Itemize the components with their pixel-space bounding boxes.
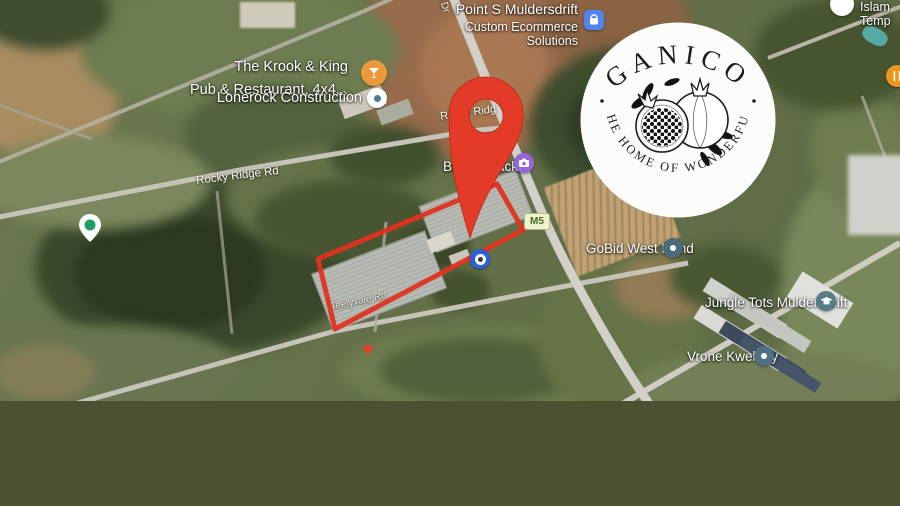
poi-dot-core <box>761 353 767 359</box>
poi-dot-icon[interactable] <box>754 346 774 366</box>
blue-circle-marker[interactable] <box>470 249 490 269</box>
poi-label: Solutions <box>456 34 578 48</box>
fork-knife-glyph <box>892 70 900 82</box>
poi-dot-icon[interactable] <box>367 88 387 108</box>
marker-inner <box>475 254 486 265</box>
bar-icon[interactable] <box>361 60 387 86</box>
poi-point-s[interactable]: Point S Muldersdrift Custom Ecommerce So… <box>456 2 578 48</box>
info-banner: WELCOME 12 MIN FROM LANSERIA 5 MIN TO TH… <box>0 401 900 506</box>
logo-dot-left <box>600 99 604 103</box>
red-dot-marker[interactable] <box>364 345 373 354</box>
poi-dot-core <box>374 95 381 102</box>
poi-label: Lonerock Construction <box>217 90 362 106</box>
screenshot: Rocky Ridge Rd Rocky Ridg Teelyvale Rd e… <box>0 0 900 506</box>
poi-label: The Krook & King <box>190 59 348 75</box>
poi-dot-icon[interactable] <box>663 238 683 258</box>
marker-core <box>478 257 483 262</box>
poi-label: Temp <box>860 14 891 28</box>
poi-label: Islam <box>860 0 891 14</box>
poi-corner[interactable]: Islam Temp <box>860 0 891 28</box>
route-shield-label: M5 <box>530 216 544 227</box>
logo-dot-right <box>752 99 756 103</box>
camera-glyph <box>518 158 530 168</box>
satellite-map[interactable]: Rocky Ridge Rd Rocky Ridg Teelyvale Rd e… <box>0 0 900 401</box>
grad-cap-glyph <box>820 296 833 306</box>
martini-glyph <box>367 66 381 80</box>
poi-label: Buggy Tracks <box>443 159 525 174</box>
ganico-logo: GANICO THE HOME OF WONDERFUL <box>578 19 778 219</box>
camera-icon[interactable] <box>514 153 534 173</box>
school-icon[interactable] <box>816 291 836 311</box>
property-boundary <box>318 184 523 329</box>
green-pin-dot <box>85 220 96 231</box>
poi-dot-core <box>670 245 676 251</box>
poi-label: Point S Muldersdrift <box>456 2 578 18</box>
poi-buggy[interactable]: Buggy Tracks <box>443 159 525 174</box>
poi-label: Custom Ecommerce <box>456 20 578 34</box>
route-shield-m5: M5 <box>524 213 550 230</box>
green-pin-marker[interactable] <box>79 214 101 242</box>
poi-lonerock[interactable]: Lonerock Construction <box>217 90 362 106</box>
